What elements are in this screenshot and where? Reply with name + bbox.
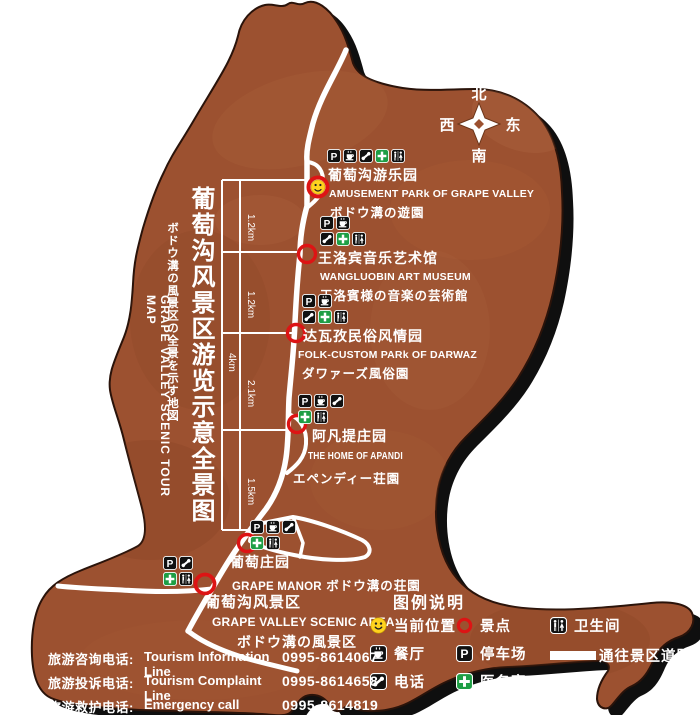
restaurant-icon [318,294,332,308]
hotline-label-zh: 旅游救护电话: [48,697,144,715]
svg-text:P: P [254,523,261,534]
parking-icon: P [163,556,177,570]
scale-segment-label: 2.1km [245,380,256,407]
medical-icon [298,410,312,424]
toilet-icon [352,232,366,246]
scenic-spot-icon [456,617,473,634]
current-location-icon [370,617,387,634]
legend-item-parking: P 停车场 [456,643,527,664]
medical-icon [318,310,332,324]
poi-home-of-apandi: P 阿凡提庄园 THE HOME OF APANDI エペンディー荘園 [293,394,427,487]
compass-east-label: 东 [505,116,520,134]
phone-icon [359,149,373,163]
poi-name-zh: 葡萄沟游乐园 [328,165,534,185]
poi-scenic-area-entrance: 葡萄沟风景区 GRAPE VALLEY SCENIC AREA ボドウ溝の風景区 [205,591,395,652]
poi-name-zh: 达瓦孜民俗风情园 [303,326,477,346]
poi-name-ja: エペンディー荘園 [293,468,427,487]
legend-label: 卫生间 [574,615,621,636]
toilet-icon [179,572,193,586]
map-title-chinese: 葡萄沟风景区游览示意全景图 [183,186,218,531]
restaurant-icon [314,394,328,408]
parking-icon: P [250,520,264,534]
hotline-emergency: 旅游救护电话: Emergency call 0995-8614819 [48,697,378,715]
poi-name-en: FOLK-CUSTOM PARk OF DARWAZ [298,349,477,361]
poi-name-zh: 葡萄庄园 [230,552,421,572]
poi-wangluobin-museum: P 王洛宾音乐艺术馆 WANGLUOBIN ART MUSEUM 王洛賓様の音楽… [298,216,471,304]
hotline-label-en: Emergency call [144,697,282,715]
svg-text:P: P [324,219,331,230]
parking-icon: P [302,294,316,308]
phone-icon [179,556,193,570]
poi-grape-manor: P 葡萄庄园 GRAPE MANOR ボドウ溝の荘園 [230,520,421,595]
poi-name-zh: 阿凡提庄园 [312,426,427,446]
legend-label: 医务室 [480,671,527,692]
legend-label: 电话 [394,671,425,692]
phone-icon [302,310,316,324]
scale-segment-label: 1.2km [245,214,256,241]
scale-segment-label: 1.5km [245,478,256,505]
poi-name-en: THE HOME OF APANDI [308,450,403,462]
parking-icon: P [456,645,473,662]
legend-item-current-location: 当前位置 [370,615,456,636]
svg-text:P: P [460,647,468,661]
legend-label: 当前位置 [394,615,456,636]
toilet-icon [314,410,328,424]
grape-valley-tour-map: 1.2km 1.2km 2.1km 1.5km 4km 北 西 东 南 [0,0,700,715]
legend-item-toilet: 卫生间 [550,615,621,636]
road-icon [550,651,596,660]
map-title-english: GRAPE VALLEY SCENIC TOUR MAP [144,295,172,510]
svg-text:P: P [306,297,313,308]
medical-icon [336,232,350,246]
poi-name-en: GRAPE VALLEY SCENIC AREA [212,615,395,629]
svg-text:P: P [331,152,338,163]
restaurant-icon [343,149,357,163]
poi-darwaz-park: P 达瓦孜民俗风情园 FOLK-CUSTOM PARk OF DARWAZ ダワ… [298,294,477,382]
poi-scenic-area-entrance-icons: P [158,556,193,588]
legend-label: 景点 [480,615,511,636]
legend-label: 餐厅 [394,643,425,664]
legend-label: 停车场 [480,643,527,664]
parking-icon: P [298,394,312,408]
phone-icon [330,394,344,408]
poi-name-zh: 王洛宾音乐艺术馆 [318,248,471,268]
poi-name-en: AMUSEMENT PARk OF GRAPE VALLEY [329,188,534,200]
medical-icon [456,673,473,690]
medical-icon [250,536,264,550]
toilet-icon [550,617,567,634]
compass-west-label: 西 [439,117,454,134]
medical-icon [375,149,389,163]
phone-icon [320,232,334,246]
poi-name-ja: ダワァーズ風俗園 [302,363,477,382]
medical-icon [163,572,177,586]
toilet-icon [391,149,405,163]
svg-text:P: P [167,559,174,570]
scale-segment-label: 1.2km [245,291,256,318]
legend-title: 图例说明 [393,595,465,613]
poi-name-zh: 葡萄沟风景区 [205,591,395,612]
phone-icon [282,520,296,534]
hotline-number: 0995-8614819 [282,697,378,715]
compass-north-label: 北 [471,86,486,103]
legend-item-scenic-spot: 景点 [456,615,511,636]
restaurant-icon [336,216,350,230]
svg-text:P: P [302,397,309,408]
parking-icon: P [327,149,341,163]
legend-item-road: 通往景区道路 [550,645,692,666]
toilet-icon [266,536,280,550]
toilet-icon [334,310,348,324]
parking-icon: P [320,216,334,230]
poi-name-en: WANGLUOBIN ART MUSEUM [320,271,471,283]
poi-amusement-park: P 葡萄沟游乐园 AMUSEMENT PARk OF GRAPE VALLEY … [315,149,534,221]
legend-label: 通往景区道路 [599,645,692,666]
legend-item-medical: 医务室 [456,671,527,692]
scale-total-label: 4km [226,353,237,372]
restaurant-icon [266,520,280,534]
